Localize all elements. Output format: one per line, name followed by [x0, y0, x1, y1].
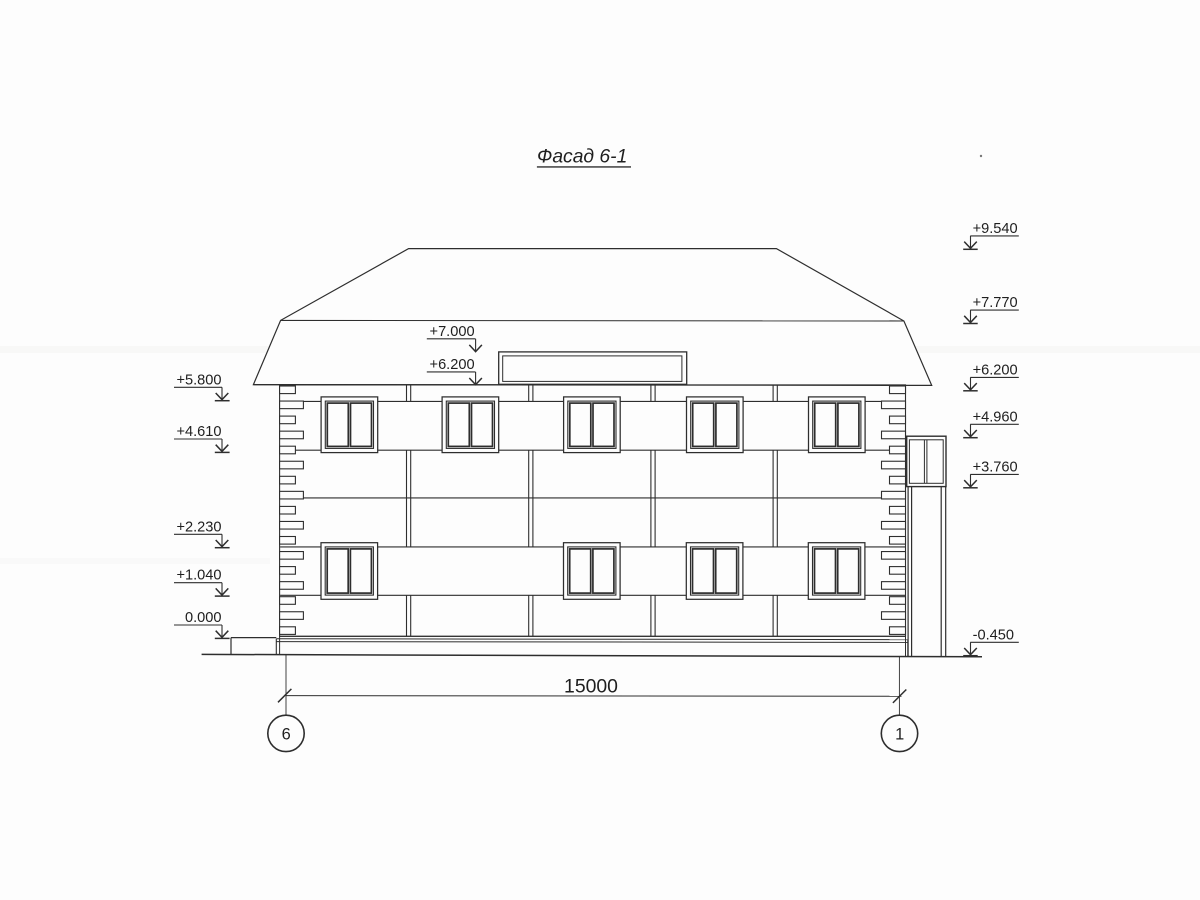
svg-text:Фасад 6-1: Фасад 6-1 — [537, 147, 627, 168]
svg-text:1: 1 — [895, 725, 904, 743]
svg-text:-0.450: -0.450 — [973, 627, 1014, 643]
svg-text:+3.760: +3.760 — [973, 459, 1018, 475]
svg-text:+5.800: +5.800 — [176, 372, 221, 388]
svg-text:+7.770: +7.770 — [973, 295, 1018, 311]
svg-text:15000: 15000 — [564, 676, 618, 698]
svg-text:6: 6 — [282, 725, 291, 743]
svg-text:0.000: 0.000 — [185, 610, 222, 626]
svg-text:+4.610: +4.610 — [176, 424, 221, 440]
svg-text:+7.000: +7.000 — [430, 324, 475, 340]
svg-text:+6.200: +6.200 — [430, 357, 475, 373]
svg-text:+2.230: +2.230 — [176, 519, 221, 535]
svg-text:+4.960: +4.960 — [973, 409, 1018, 425]
svg-text:+9.540: +9.540 — [973, 221, 1018, 237]
svg-text:+6.200: +6.200 — [973, 362, 1018, 378]
svg-text:+1.040: +1.040 — [176, 568, 221, 584]
